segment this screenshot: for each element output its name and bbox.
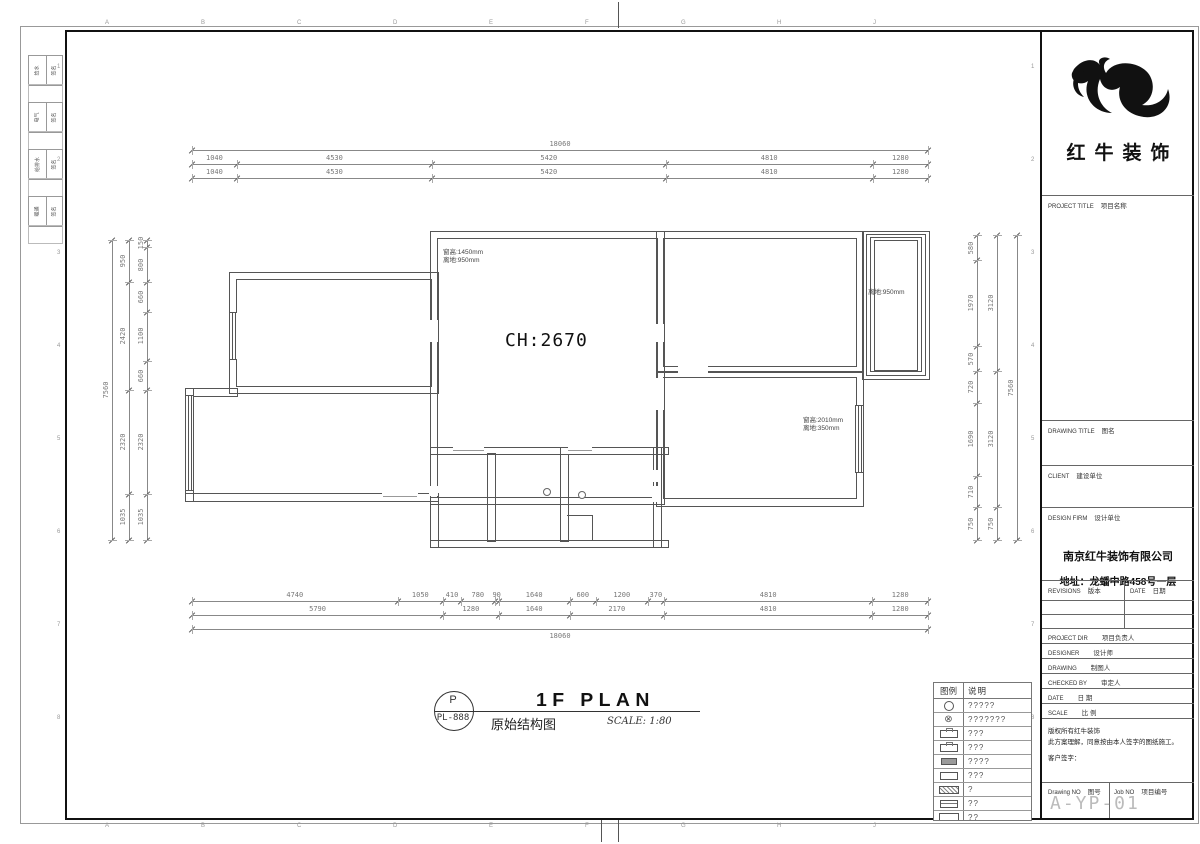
legend-row: ??? [934,727,1031,741]
dim-line [192,615,928,616]
tb-divider [1042,628,1194,629]
signature-sign-cell: 签名 [46,196,63,227]
dim-ext [666,160,667,169]
dim-ext [928,160,929,169]
dim-ext [872,597,873,606]
grid-number: 1 [1031,64,1034,70]
dim-ext [143,390,152,391]
dim-label: 370 [650,591,663,599]
legend-symbol-icon [934,727,964,740]
dim-label: 1280 [892,605,909,613]
legend-symbol-icon: ⊗ [934,713,964,726]
tb-row-label: CHECKED BY审定人 [1048,677,1121,687]
dim-label: 1100 [137,328,145,345]
dim-label: 410 [446,591,459,599]
dim-label: 800 [137,258,145,271]
dim-ext [973,346,982,347]
legend-row: ??? [934,741,1031,755]
signature-discipline-cell: 电气 [28,102,47,133]
legend-row: ??? [934,769,1031,783]
door-opening [655,324,664,342]
dim-ext [192,625,193,634]
dim-ext [237,160,238,169]
legend-desc: ?? [964,799,979,808]
sheet-code: A-YP-01 [1050,793,1140,814]
dim-ext [570,597,571,606]
floor-drain-icon [543,488,551,496]
legend-desc: ??????? [964,715,1006,724]
dim-label: 1200 [613,591,630,599]
legend-row: ?? [934,797,1031,811]
legend-symbol-icon [934,797,964,810]
tb-divider [1042,465,1194,466]
dim-ext [108,540,117,541]
tb-divider [1042,507,1194,508]
floor-drain-icon [578,491,586,499]
grid-number: 2 [1031,157,1034,163]
dim-ext [125,390,134,391]
legend-symbol-icon [934,755,964,768]
dim-label: 1040 [206,154,223,162]
legend-symbol-icon [934,811,964,821]
tb-row-label: DRAWING制图人 [1048,662,1110,672]
wall [874,240,918,371]
legend-desc: ? [964,785,973,794]
dim-ext [973,476,982,477]
window [229,312,237,360]
dim-ext [872,611,873,620]
door-opening [652,486,661,502]
grid-number: 4 [1031,343,1034,349]
signature-blank-cell [28,131,63,150]
grid-number: 4 [57,343,60,349]
project-title-label: PROJECT TITLE项目名称 [1048,200,1127,210]
window [855,405,863,473]
dim-ext [873,160,874,169]
dim-ext [973,371,982,372]
signature-blank-cell [28,178,63,197]
dim-label: 4530 [326,168,343,176]
dim-ext [125,240,134,241]
grid-number: 5 [1031,436,1034,442]
plan-title-cn: 原始结构图 [491,714,556,733]
dim-label: 1640 [526,605,543,613]
signature-sign-cell: 签名 [46,102,63,133]
dim-line [192,629,928,630]
dim-label: 710 [967,485,975,498]
drawing-tag-code: PL-888 [433,713,473,723]
grid-letter: C [297,20,301,26]
dim-ext [973,540,982,541]
dim-label: 570 [967,352,975,365]
wall [236,279,432,387]
legend-header-desc: 说明 [964,685,987,697]
dim-ext [237,174,238,183]
dim-label: 4810 [760,605,777,613]
dim-ext [973,403,982,404]
dim-label: 2170 [608,605,625,613]
dim-line [192,150,928,151]
dim-label: 18060 [549,140,570,148]
tb-divider [1042,782,1194,783]
grid-letter: A [105,20,109,26]
grid-letter: D [393,823,397,829]
grid-letter: A [105,823,109,829]
dim-label: 660 [137,291,145,304]
dim-label: 580 [967,241,975,254]
dim-ext [143,361,152,362]
dim-ext [666,174,667,183]
dim-ext [143,540,152,541]
grid-number: 8 [57,715,60,721]
dim-ext [192,146,193,155]
dim-label: 5790 [309,605,326,613]
legend-desc: ????? [964,701,995,710]
wall-line [567,515,593,516]
dim-ext [432,174,433,183]
dim-ext [664,611,665,620]
dim-label: 1040 [206,168,223,176]
door-threshold [453,450,484,451]
dim-label: 660 [137,369,145,382]
tb-divider [1042,614,1194,615]
dim-ext [1013,235,1022,236]
grid-number: 5 [57,436,60,442]
company-logo-icon [1060,55,1176,135]
legend-symbol-icon [934,783,964,796]
wall [437,238,658,498]
window-note: 窗高:2010mm 离地:350mm [803,417,843,433]
firm-name: 南京红牛装饰有限公司 [1042,548,1194,564]
window-note: 离地:950mm [868,289,904,297]
tb-divider [1042,580,1194,581]
tb-divider [1042,420,1194,421]
tb-divider [1042,600,1194,601]
door-opening [652,470,661,482]
grid-letter: J [873,823,876,829]
grid-number: 7 [57,622,60,628]
tb-note: 版权所有红牛装饰 [1048,725,1100,735]
legend-row: ? [934,783,1031,797]
dim-ext [432,160,433,169]
grid-number: 6 [57,529,60,535]
grid-letter: E [489,20,493,26]
dim-label: 2320 [119,434,127,451]
legend-symbol-icon [934,769,964,782]
tb-divider [1042,643,1194,644]
dim-ext [1013,540,1022,541]
fold-mark [618,820,619,842]
dim-line [977,235,978,540]
grid-number: 7 [1031,622,1034,628]
grid-letter: H [777,20,781,26]
signature-discipline-cell: 给排水 [28,149,47,180]
dim-ext [499,611,500,620]
dim-label: 3120 [987,295,995,312]
door-opening [655,378,664,410]
dim-ext [993,507,1002,508]
plan-title-en: 1F PLAN [536,690,655,711]
dim-label: 3120 [987,431,995,448]
signature-sign-cell: 签名 [46,55,63,86]
dim-label: 1690 [967,431,975,448]
legend-desc: ???? [964,757,990,766]
grid-letter: H [777,823,781,829]
dim-ext [192,160,193,169]
dim-label: 4810 [760,591,777,599]
grid-letter: B [201,823,205,829]
dim-ext [443,597,444,606]
dim-ext [125,282,134,283]
grid-number: 3 [1031,250,1034,256]
wall [663,377,857,499]
legend-table: 图例 说明 ?????⊗????????????????????????????… [933,682,1032,821]
drawing-sheet: AABBCCDDEEFFGGHHJJ1122334455667788给水签名电气… [0,0,1200,844]
revisions-label: REVISIONS版本 [1048,585,1101,595]
dim-label: 4810 [761,168,778,176]
legend-desc: ?? [964,813,979,821]
legend-symbol-icon [934,699,964,712]
dim-label: 750 [967,517,975,530]
window [185,395,193,491]
tb-row-label: SCALE比 例 [1048,707,1097,717]
scale-label: SCALE: 1:80 [607,716,672,727]
dim-ext [443,611,444,620]
door-threshold [383,496,417,497]
dim-label: 4810 [761,154,778,162]
dim-line [1017,235,1018,540]
drawing-tag-letter: P [434,694,472,706]
legend-desc: ??? [964,743,984,752]
title-underline [435,711,700,712]
dim-ext [873,174,874,183]
title-block: 红牛装饰 PROJECT TITLE项目名称 DRAWING TITLE图名 C… [1040,30,1194,818]
door-threshold [568,450,592,451]
dim-ext [398,597,399,606]
tb-note: 客户签字： [1048,752,1081,762]
drawing-title-label: DRAWING TITLE图名 [1048,425,1115,435]
dim-ext [928,611,929,620]
dim-ext [143,312,152,313]
dim-label: 2420 [119,328,127,345]
dim-ext [928,146,929,155]
grid-number: 3 [57,250,60,256]
grid-number: 6 [1031,529,1034,535]
grid-letter: G [681,823,686,829]
dim-ext [973,260,982,261]
dim-label: 1035 [137,508,145,525]
grid-letter: D [393,20,397,26]
legend-symbol-icon [934,741,964,754]
dim-line [192,178,928,179]
signature-blank-cell [28,225,63,244]
dim-label: 720 [967,381,975,394]
dim-ext [928,625,929,634]
dim-ext [108,240,117,241]
tb-divider [1042,718,1194,719]
ceiling-height-label: CH:2670 [505,330,588,351]
dim-label: 2320 [137,434,145,451]
wall [430,540,669,548]
dim-label: 750 [987,517,995,530]
grid-letter: E [489,823,493,829]
dim-label: 5420 [540,168,557,176]
dim-label: 7560 [102,382,110,399]
door-opening [429,320,438,342]
dim-label: 1280 [892,168,909,176]
dim-ext [125,494,134,495]
wall [487,453,496,542]
grid-letter: C [297,823,301,829]
signature-blank-cell [28,84,63,103]
signature-discipline-cell: 暖通 [28,196,47,227]
dim-label: 1280 [892,154,909,162]
revisions-col-divider [1124,580,1125,628]
wall [663,238,857,367]
dim-line [192,164,928,165]
dim-label: 4530 [326,154,343,162]
dim-label: 1640 [526,591,543,599]
grid-letter: F [585,20,589,26]
tb-divider [1042,658,1194,659]
dim-ext [596,597,597,606]
tb-divider [1042,703,1194,704]
dim-label: 7560 [1007,379,1015,396]
window-note: 窗高:1450mm 离地:950mm [443,249,483,265]
date-col-label: DATE日期 [1130,585,1166,595]
company-logo-text: 红牛装饰 [1042,138,1194,165]
dim-label: 1280 [462,605,479,613]
dim-ext [928,597,929,606]
door-opening [678,364,708,373]
grid-letter: F [585,823,589,829]
dim-line [112,240,113,540]
legend-header: 图例 说明 [934,683,1031,699]
dim-ext [973,507,982,508]
dim-label: 780 [471,591,484,599]
dim-ext [192,611,193,620]
dim-label: 1035 [119,508,127,525]
dim-label: 1050 [412,591,429,599]
client-label: CLIENT建设单位 [1048,470,1102,480]
dim-label: 90 [492,591,500,599]
wall [560,447,569,542]
dim-ext [993,540,1002,541]
signature-discipline-cell: 给水 [28,55,47,86]
dim-ext [192,597,193,606]
dim-label: 5420 [540,154,557,162]
legend-header-symbol: 图例 [934,683,964,698]
dim-ext [664,597,665,606]
tb-row-label: DATE日 期 [1048,692,1092,702]
tb-note: 此方案理解，同意按由本人签字的图纸施工。 [1048,736,1178,746]
tb-divider [1042,673,1194,674]
dim-ext [570,611,571,620]
signature-sign-cell: 签名 [46,149,63,180]
fold-mark [601,820,602,842]
grid-letter: B [201,20,205,26]
dim-label: 150 [137,237,145,250]
legend-desc: ??? [964,771,984,780]
dim-ext [993,371,1002,372]
wall-line [592,515,593,541]
tb-row-label: DESIGNER设计师 [1048,647,1113,657]
wall [430,497,439,548]
legend-desc: ??? [964,729,984,738]
dim-line [997,235,998,540]
legend-row: ????? [934,699,1031,713]
design-firm-label: DESIGN FIRM设计单位 [1048,512,1120,522]
dim-ext [192,174,193,183]
legend-row: ⊗??????? [934,713,1031,727]
dim-ext [125,540,134,541]
dim-label: 600 [576,591,589,599]
dim-ext [993,235,1002,236]
tb-divider [1042,688,1194,689]
dim-ext [928,174,929,183]
dim-label: 950 [119,255,127,268]
grid-letter: J [873,20,876,26]
dim-ext [973,235,982,236]
dim-label: 4740 [286,591,303,599]
tb-row-label: PROJECT DIR项目负责人 [1048,632,1134,642]
fold-mark [618,2,619,28]
dim-ext [143,282,152,283]
door-opening [429,486,438,496]
dim-line [192,601,928,602]
dim-label: 18060 [549,632,570,640]
legend-row: ???? [934,755,1031,769]
legend-row: ?? [934,811,1031,821]
dim-label: 1280 [892,591,909,599]
grid-letter: G [681,20,686,26]
dim-ext [143,494,152,495]
dim-label: 1970 [967,295,975,312]
tb-divider [1042,195,1194,196]
